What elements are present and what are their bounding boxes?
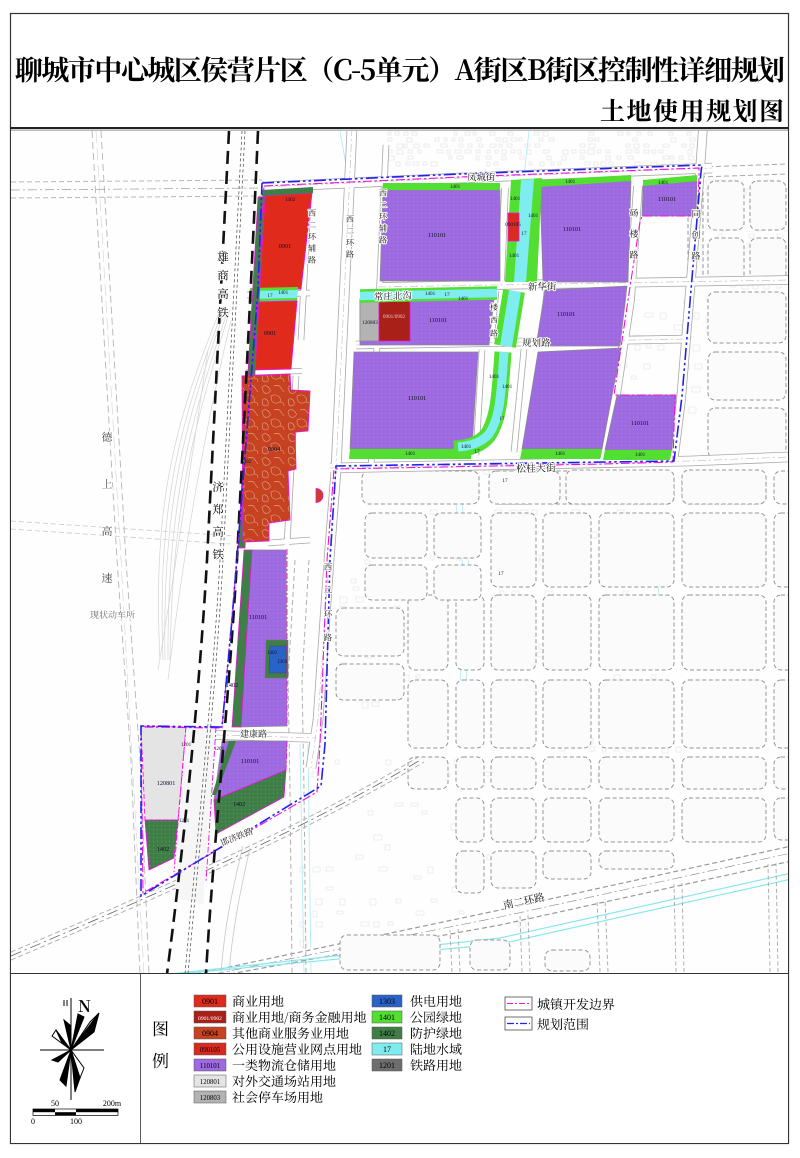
- svg-text:1401: 1401: [502, 384, 513, 390]
- svg-text:090105: 090105: [505, 222, 521, 228]
- svg-text:1402: 1402: [226, 682, 238, 689]
- svg-text:090105: 090105: [200, 1047, 221, 1054]
- svg-text:1401: 1401: [635, 452, 646, 458]
- svg-text:17: 17: [499, 416, 505, 422]
- svg-text:0901: 0901: [264, 330, 276, 337]
- svg-text:0901/0902: 0901/0902: [383, 314, 406, 320]
- svg-text:200m: 200m: [103, 1099, 122, 1108]
- svg-text:110101: 110101: [408, 395, 426, 402]
- svg-text:17: 17: [502, 478, 508, 484]
- svg-text:1402: 1402: [285, 197, 296, 203]
- svg-text:120801: 120801: [157, 780, 176, 787]
- svg-text:120801: 120801: [200, 1079, 220, 1086]
- svg-text:1401: 1401: [379, 1013, 395, 1022]
- svg-text:1402: 1402: [379, 1029, 395, 1038]
- svg-text:0: 0: [31, 1117, 35, 1126]
- svg-text:1401: 1401: [658, 180, 669, 186]
- svg-text:1401: 1401: [510, 196, 521, 202]
- svg-text:1402: 1402: [241, 459, 252, 465]
- svg-text:0901/0902: 0901/0902: [198, 1016, 222, 1022]
- svg-text:110101: 110101: [429, 317, 447, 324]
- svg-text:1401: 1401: [458, 296, 469, 302]
- svg-text:1402: 1402: [267, 650, 278, 656]
- svg-text:1201: 1201: [181, 742, 192, 748]
- svg-text:1402: 1402: [233, 801, 245, 808]
- svg-text:110101: 110101: [249, 614, 267, 621]
- svg-text:1303: 1303: [277, 659, 288, 665]
- svg-text:17: 17: [521, 231, 527, 237]
- svg-text:110101: 110101: [241, 758, 259, 765]
- svg-text:1201: 1201: [214, 746, 225, 752]
- svg-text:17: 17: [498, 571, 504, 577]
- svg-text:17: 17: [267, 293, 273, 299]
- svg-text:110101: 110101: [658, 196, 676, 203]
- svg-text:17: 17: [444, 292, 450, 298]
- svg-text:1401: 1401: [509, 253, 520, 259]
- svg-text:1401: 1401: [555, 451, 566, 457]
- svg-text:100: 100: [70, 1117, 82, 1126]
- svg-text:1401: 1401: [461, 444, 472, 450]
- svg-text:0904: 0904: [202, 1029, 218, 1038]
- svg-text:1401: 1401: [278, 290, 289, 296]
- svg-text:50: 50: [51, 1099, 59, 1108]
- svg-text:120803: 120803: [362, 320, 378, 326]
- svg-text:1401: 1401: [489, 374, 500, 380]
- svg-text:110101: 110101: [631, 420, 649, 427]
- svg-text:110101: 110101: [557, 311, 575, 318]
- svg-text:110101: 110101: [563, 226, 581, 233]
- svg-text:110101: 110101: [428, 232, 446, 239]
- svg-text:1402: 1402: [157, 846, 169, 853]
- svg-text:1401: 1401: [405, 451, 416, 457]
- svg-text:0901: 0901: [279, 243, 291, 250]
- svg-text:1401: 1401: [528, 213, 539, 219]
- svg-text:110101: 110101: [200, 1063, 220, 1070]
- svg-text:1401: 1401: [450, 184, 461, 190]
- svg-text:1201: 1201: [379, 1061, 395, 1070]
- svg-text:0904: 0904: [268, 446, 280, 453]
- svg-text:120803: 120803: [200, 1095, 221, 1102]
- svg-text:17: 17: [383, 1045, 391, 1054]
- svg-text:1303: 1303: [379, 997, 395, 1006]
- svg-text:17: 17: [474, 449, 480, 455]
- svg-text:1201: 1201: [179, 818, 190, 824]
- svg-text:0901: 0901: [202, 997, 218, 1006]
- svg-text:1401: 1401: [425, 291, 436, 297]
- svg-text:1401: 1401: [565, 179, 576, 185]
